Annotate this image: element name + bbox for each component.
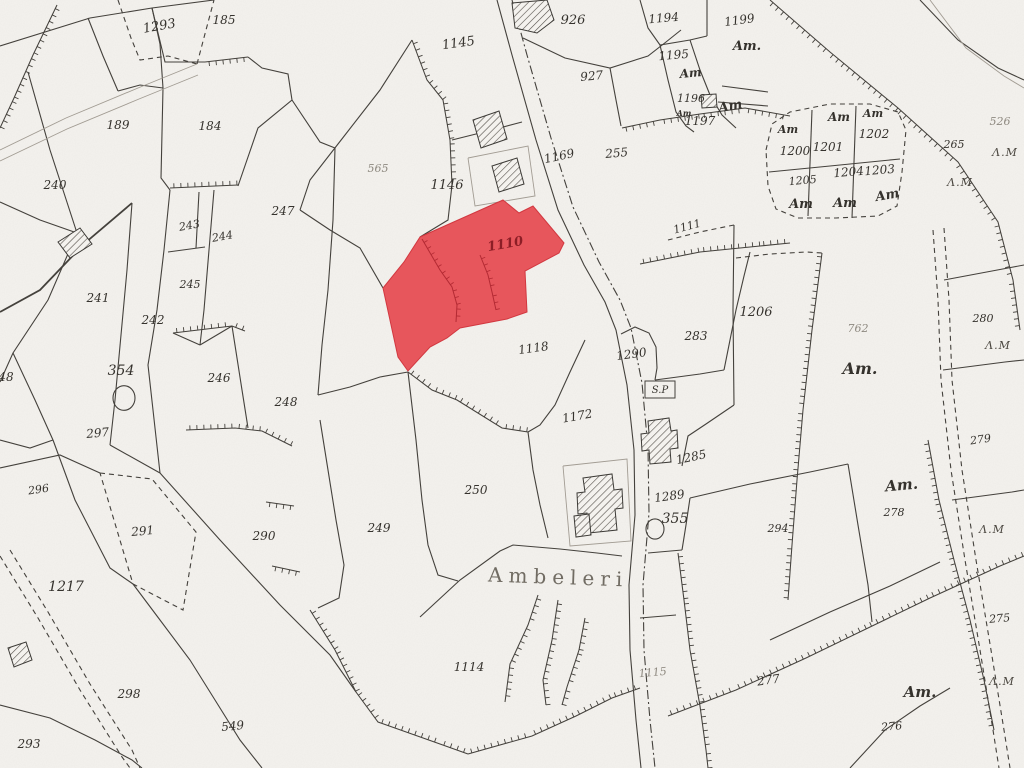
hachure-tick [701,716,705,717]
hachure-tick [190,326,191,330]
parcel-label-1200: 1200 [780,144,811,158]
hachure-tick [811,305,815,306]
parcel-label-Am.: Am. [731,39,761,54]
hachure-tick [813,291,817,292]
parcel-label-Am.: Am. [841,359,878,378]
hachure-tick [1009,284,1013,285]
hachure-tick [545,697,549,698]
hachure-tick [701,709,705,710]
hachure-tick [225,322,226,326]
hachure-tick [1011,298,1015,299]
parcel-label-565: 565 [368,162,389,175]
parcel-label-1115: 1115 [638,665,667,680]
hachure-tick [687,624,691,625]
parcel-label-250: 250 [464,483,488,497]
hachure-tick [800,396,804,397]
parcel-label-Am: Am [787,197,813,212]
hachure-tick [1010,291,1014,292]
hachure-tick [244,57,245,61]
hachure-tick [806,347,810,348]
parcel-label-242: 242 [141,313,165,327]
hachure-tick [683,591,687,592]
hachure-tick [685,610,689,611]
parcel-label-1114: 1114 [454,660,485,674]
parcel-label-294: 294 [767,522,789,535]
hachure-tick [176,328,177,332]
hachure-tick [703,730,707,731]
parcel-label-245: 245 [179,278,201,291]
hachure-tick [237,58,238,62]
parcel-label-1195: 1195 [658,47,690,64]
parcel-label-526: 526 [990,115,1011,128]
parcel-label-184: 184 [199,119,222,133]
hachure-tick [290,506,291,510]
hachure-tick [216,61,217,65]
parcel-label-283: 283 [684,329,708,343]
hachure-tick [809,319,813,320]
parcel-label-275: 275 [988,611,1011,626]
hachure-tick [814,277,818,278]
parcel-label-1217: 1217 [48,579,84,595]
parcel-label-291: 291 [130,523,155,539]
parcel-label-249: 249 [367,521,391,535]
parcel-label-1205: 1205 [788,173,817,188]
hachure-tick [1012,305,1016,306]
hachure-tick [283,505,284,509]
hachure-tick [808,326,812,327]
parcel-label-Am: Am [827,110,850,124]
hachure-tick [507,689,511,690]
parcel-label-276: 276 [880,719,903,734]
parcel-label-Λ.Μ: Λ.Μ [988,675,1015,688]
parcel-label-185: 185 [213,13,236,27]
hachure-tick [802,382,806,383]
hachure-tick [688,631,692,632]
hachure-tick [682,584,686,585]
parcel-label-926: 926 [561,13,586,28]
hachure-tick [276,504,277,508]
parcel-label-247: 247 [271,204,295,218]
hachure-tick [506,696,510,697]
parcel-label-Am.: Am. [902,683,937,701]
hachure-tick [543,683,547,684]
parcel-label-1196: 1196 [677,92,705,105]
parcel-label-1197: 1197 [685,114,716,128]
hachure-tick [509,668,513,669]
parcel-label-255: 255 [604,145,629,161]
parcel-label-Λ.Μ: Λ.Μ [978,523,1005,536]
hachure-tick [211,324,212,328]
parcel-label-297: 297 [85,425,110,441]
hachure-tick [810,312,814,313]
hachure-tick [269,503,270,507]
hachure-tick [1015,326,1019,327]
hachure-tick [806,340,810,341]
parcel-label-1194: 1194 [648,10,680,27]
hachure-tick [817,256,821,257]
parcel-label-298: 298 [117,687,141,701]
parcel-label-280: 280 [972,312,994,325]
hachure-tick [801,389,805,390]
hachure-tick [183,327,184,331]
hachure-tick [802,375,806,376]
parcel-label-Am.: Am. [882,475,918,496]
hachure-tick [704,737,708,738]
parcel-label-1206: 1206 [739,305,772,320]
parcel-label-1201: 1201 [813,140,844,154]
hachure-tick [689,638,693,639]
parcel-label-Am: Am [862,107,883,120]
parcel-label-Am: Am [777,123,798,136]
hachure-tick [813,284,817,285]
hachure-tick [218,323,219,327]
parcel-label-278: 278 [883,506,905,519]
hachure-tick [679,563,683,564]
hachure-tick [815,270,819,271]
parcel-label-1203: 1203 [864,162,896,179]
parcel-label-189: 189 [107,118,130,132]
hachure-tick [223,60,224,64]
hachure-tick [681,577,685,578]
hachure-tick [679,556,683,557]
parcel-label-290: 290 [252,529,276,543]
parcel-label-762: 762 [848,322,869,335]
parcel-label-241: 241 [86,291,110,305]
hachure-tick [816,263,820,264]
parcel-label-293: 293 [17,737,41,751]
parcel-label-Λ.Μ: Λ.Μ [984,339,1011,352]
cadastral-map-canvas: S.P 1293185926114592711941199Am.1195Am18… [0,0,1024,768]
hachure-tick [1013,312,1017,313]
hachure-tick [686,617,690,618]
hachure-tick [680,570,684,571]
hachure-tick [803,368,807,369]
parcel-label-248: 248 [274,395,298,409]
hachure-tick [209,62,210,66]
hachure-tick [544,690,548,691]
hachure-tick [799,403,803,404]
hachure-tick [689,645,693,646]
hachure-tick [546,704,550,705]
parcel-label-48: 48 [0,370,14,384]
parcel-label-355: 355 [662,511,689,527]
parcel-label-927: 927 [580,68,604,84]
parcel-label-1204: 1204 [833,164,865,181]
parcel-label-246: 246 [207,371,231,385]
hachure-tick [807,333,811,334]
annotation-box-label: S.P [652,385,669,396]
parcel-label-Am: Am [831,196,857,211]
parcel-label-1146: 1146 [430,178,463,193]
parcel-label-265: 265 [943,138,965,151]
parcel-label-240: 240 [43,178,67,192]
hachure-tick [684,603,688,604]
hachure-tick [684,598,688,599]
hachure-tick [509,675,513,676]
hachure-tick [812,298,816,299]
parcel-label-Λ.Μ: Λ.Μ [991,146,1018,159]
hachure-tick [230,59,231,63]
hachure-tick [197,326,198,330]
hachure-tick [805,354,809,355]
hachure-tick [702,723,706,724]
hachure-tick [1014,319,1018,320]
parcel-label-549: 549 [221,718,245,734]
parcel-label-Λ.Μ: Λ.Μ [946,176,973,189]
place-name-label: Ambeleri [487,563,629,592]
parcel-label-Am: Am [678,65,702,81]
hachure-tick [204,325,205,329]
hachure-tick [705,744,709,745]
building-footprint [574,514,591,537]
hachure-tick [804,361,808,362]
parcel-label-354: 354 [108,363,135,379]
parcel-label-1202: 1202 [859,127,890,141]
cadastral-map: S.P 1293185926114592711941199Am.1195Am18… [0,0,1024,768]
hachure-tick [508,682,512,683]
